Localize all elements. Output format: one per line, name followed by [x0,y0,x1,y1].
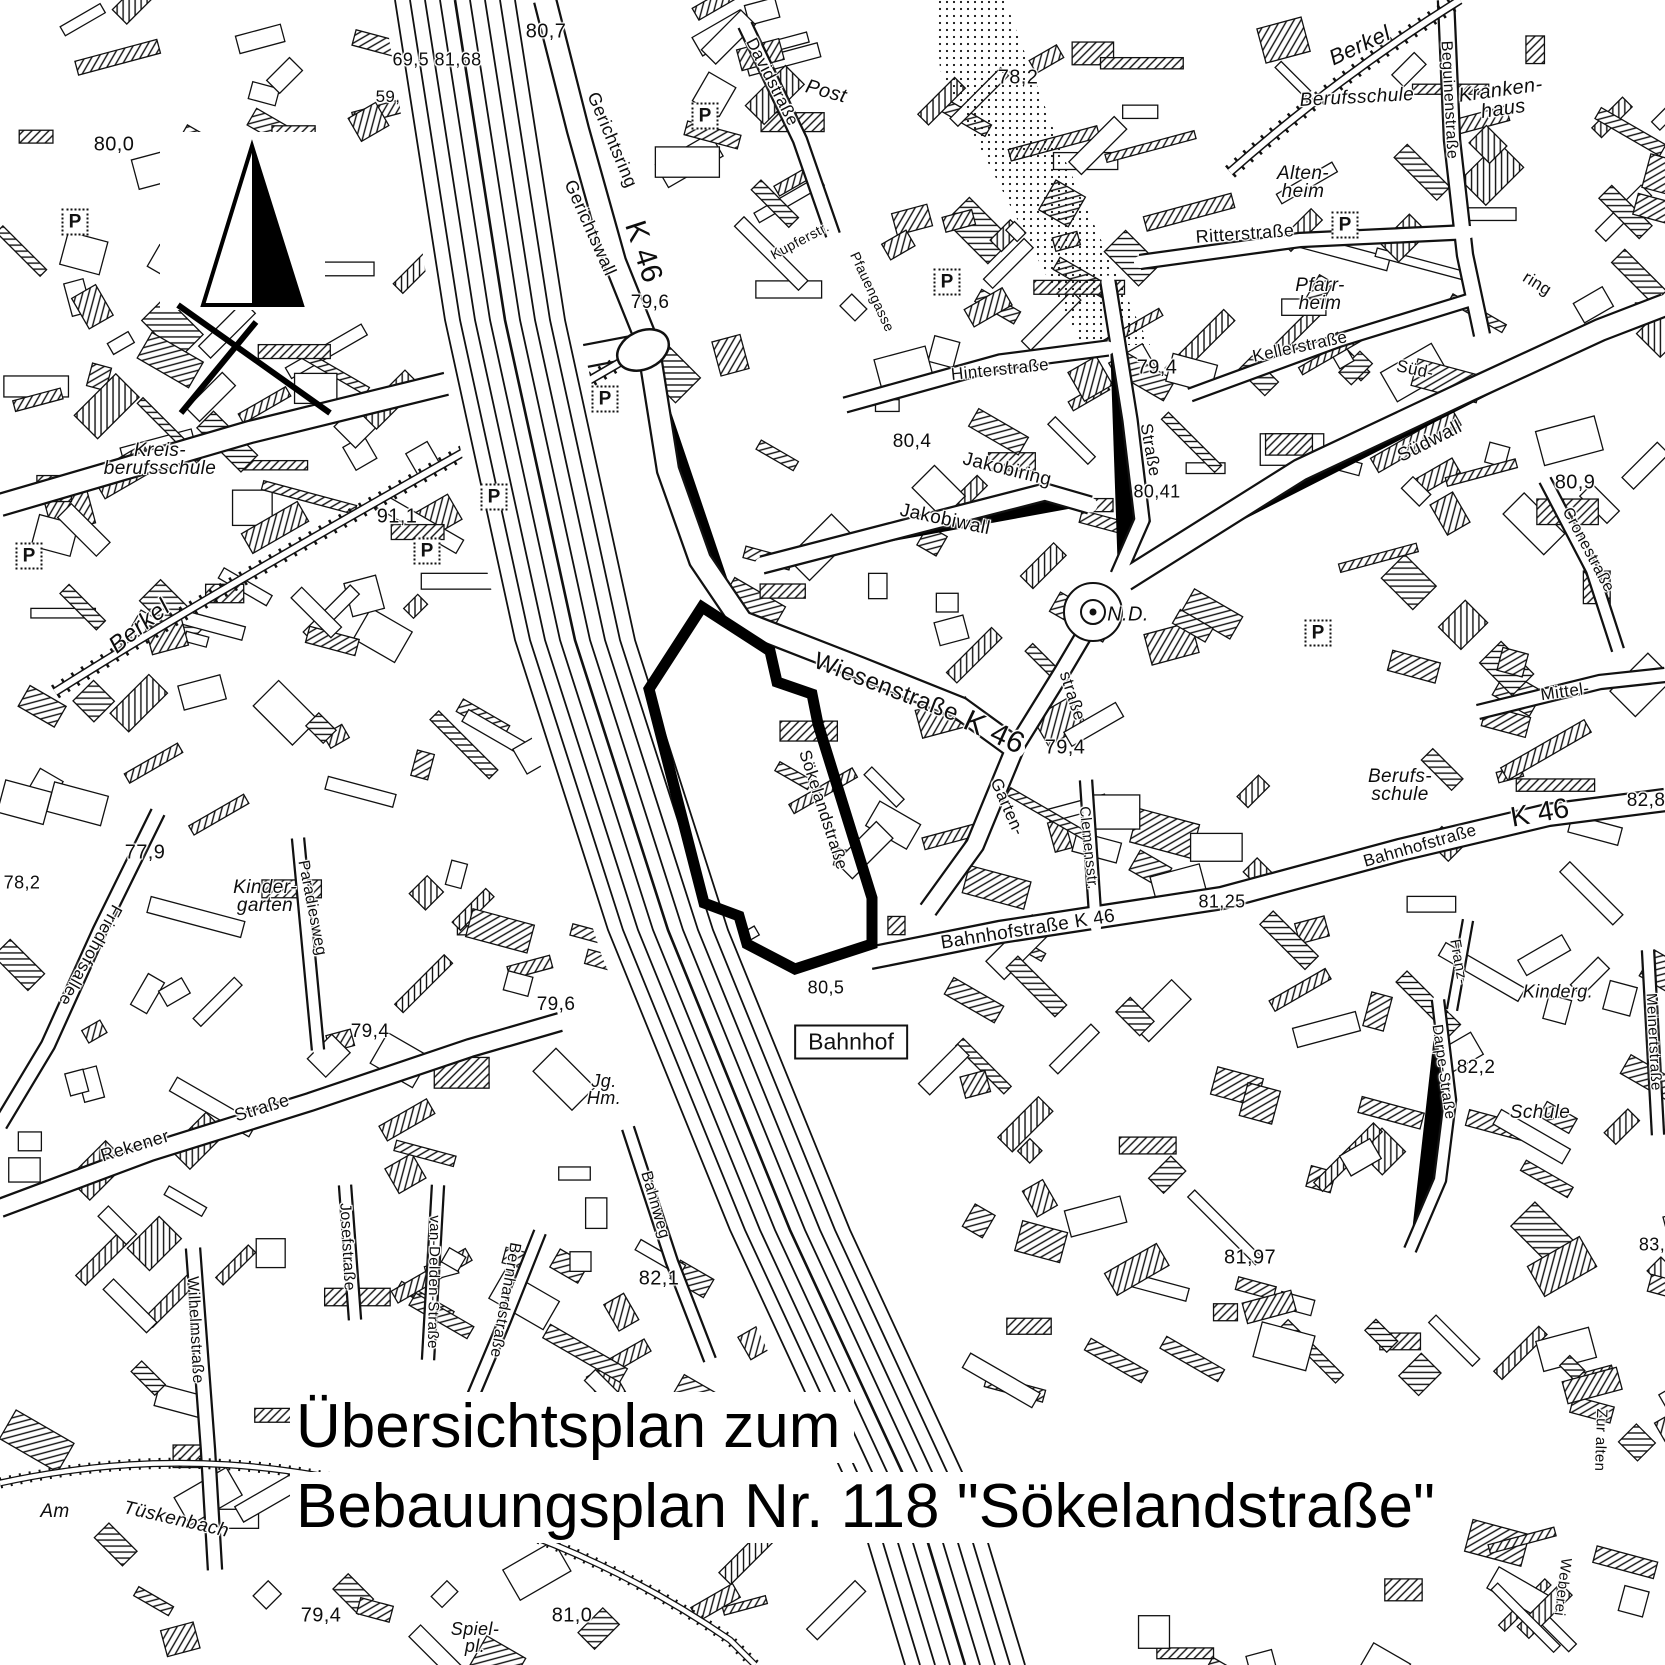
map-label: 79,6 [537,996,576,1014]
map-label: 80,9 [1555,474,1596,493]
map-label: Jakobiwall [898,502,991,539]
parking-symbol: P [1305,620,1332,647]
station-label: Bahnhof [794,1025,908,1060]
map-label: 80,41 [1133,483,1180,500]
map-label: Pfarr- heim [1295,277,1345,313]
map-label: van-Delden-Straße [425,1215,442,1349]
map-label: 77,9 [125,844,166,863]
parking-symbol: P [692,103,719,130]
map-label: Kellerstraße [1251,329,1349,365]
map-label: Hinterstraße [950,357,1049,383]
map-label: Kinder- garten [233,879,297,915]
map-label: Berufs- schule [1368,768,1432,804]
map-label: Bahnweg [638,1169,672,1240]
map-label: N.D. [1107,606,1149,625]
parking-symbol: P [592,386,619,413]
map-label: 83, [1639,1236,1665,1253]
map-label: Schule [1510,1104,1571,1122]
map-label: straße [1057,669,1088,722]
map-label: Friedhofsallee [56,902,125,1008]
map-label: Darpe-Straße [1429,1024,1456,1121]
map-title-line2: Bebauungsplan Nr. 118 "Sökelandstraße" [290,1472,1449,1543]
map-label: Kranken- haus [1458,75,1547,124]
map-label: Süd- [1395,358,1435,382]
map-label: 79,4 [301,1607,342,1626]
map-label: 79,4 [1045,739,1086,758]
map-label: 81,0 [552,1607,593,1626]
map-label: 78,2 [998,69,1039,88]
map-label: Südwall [1395,418,1465,466]
map-title-line1: Übersichtsplan zum [290,1392,854,1463]
map-label: Straße [1137,422,1162,477]
map-label: K 46 [620,217,667,286]
map-label: Josefstraße [337,1203,357,1292]
map-label: Berkel [105,596,174,658]
parking-symbol: P [1332,212,1359,239]
map-label: Sökelandstraße [796,748,850,872]
map-label: Beguinenstraße [1438,40,1459,159]
parking-symbol: P [481,484,508,511]
map-label: K 46 [959,707,1028,760]
map-label: Bernhardstraße [487,1241,522,1359]
map-label: Alten- heim [1277,165,1329,201]
map-label: Paradiesweg [295,859,328,957]
map-label: Wilhelmstraße [185,1276,206,1384]
map-label: Cronestraße [1559,505,1616,595]
map-label: Berkel [1326,23,1394,69]
map-label: Meinertstraße [1643,993,1662,1091]
map-label: Ritterstraße [1195,222,1295,246]
map-label: 80,5 [808,979,845,996]
map-label: Spiel- pl. [451,1621,499,1655]
map-label: Rekener [99,1127,172,1164]
map-label: Clemensstr. [1077,806,1100,891]
map-label: Tüskenbach [122,1499,231,1541]
map-label: Bahnhofstraße [1362,822,1479,870]
map-label: Post [803,77,848,106]
map-label: 91,1 [377,508,418,527]
map-label: Weberei [1551,1557,1572,1617]
map-label: K 46 [1509,795,1572,831]
map-label: 80,4 [893,433,932,451]
map-label: 79,4 [351,1023,390,1041]
map-label: ring [1520,269,1554,299]
map-label: Gerichtsring [584,90,640,190]
map-label: Gerichtswall [561,178,618,279]
map-label: Straße [233,1092,292,1125]
map-label: 82,1 [639,1270,680,1289]
map-label: 82,2 [1457,1059,1496,1077]
map-label: Kreis- berufsschule [104,442,217,478]
parking-symbol: P [934,269,961,296]
parking-symbol: P [16,543,43,570]
parking-symbol: P [414,538,441,565]
map-label: 59, [376,89,401,105]
parking-symbol: P [62,209,89,236]
map-label: Jakobiring [961,450,1053,489]
map-label: 79,4 [1137,359,1178,378]
map-label: Mittel- [1540,681,1591,704]
map-label: Zur alten [1592,1408,1608,1471]
topographic-map: 80,069,5 81,6859,80,7GerichtsringGericht… [0,0,1665,1665]
map-label: Pfauengasse [848,250,896,334]
map-label: Bahnhofstraße K 46 [940,907,1117,952]
map-label: 69,5 81,68 [392,51,481,68]
map-label: 81,25 [1198,893,1245,910]
map-label: Jg. Hm. [587,1073,621,1107]
map-label: 81,97 [1224,1249,1276,1268]
map-label: 80,0 [94,136,135,155]
map-label: Franz- [1447,938,1469,986]
map-label: 80,7 [526,23,567,42]
map-label: 79,6 [631,294,670,312]
map-label: Am [40,1503,69,1521]
map-label: 78,2 [4,874,41,891]
map-label: Kupferstr. [769,220,832,262]
map-label: Garten- [987,776,1026,838]
map-label: 82,8 [1627,792,1665,810]
map-label: Davidstraße [743,36,801,129]
map-label: Kinderg. [1523,983,1593,1000]
map-label: Wiesenstraße [811,650,962,726]
map-label: Berufsschule [1299,86,1414,110]
